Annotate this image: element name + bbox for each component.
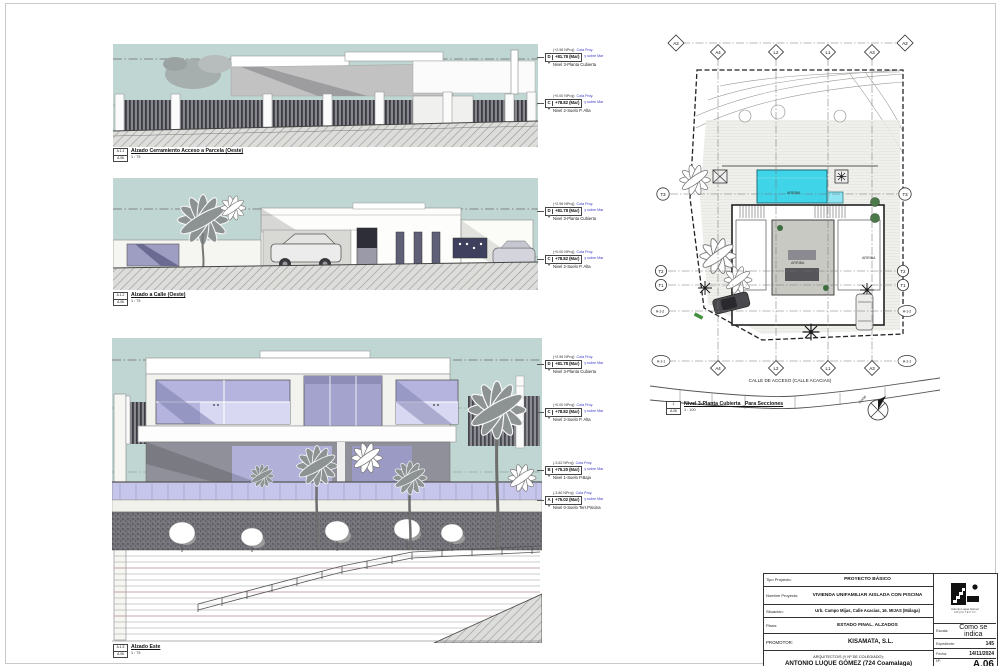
level-marker-c: (+0.00 NProj)Cota Proy. C+78.82 (Mar)y s… bbox=[537, 404, 667, 423]
level-marker-c: (+0.00 NProj)Cota Proy. C+78.82 (Mar)y s… bbox=[537, 95, 667, 114]
grid-bubble-l1-bottom: L1 bbox=[821, 361, 836, 376]
view-tag: A.1.1A.06 bbox=[113, 148, 128, 162]
grid-bubble-a4-top: A4 bbox=[711, 45, 726, 60]
svg-text:CALLE DE ACCESO (CALLE ACACIAS: CALLE DE ACCESO (CALLE ACACIAS) bbox=[749, 378, 832, 383]
grid-bubble-a4-bottom: A4 bbox=[711, 361, 726, 376]
level-marker-d: (+2.96 NProj)Cota Proy. D+81.78 (Mar)y s… bbox=[537, 203, 667, 222]
view-tag: A.1.3A.06 bbox=[113, 644, 128, 658]
view-tag: A.1.2A.06 bbox=[113, 292, 128, 306]
grid-bubble-t2-right: T2 bbox=[897, 265, 908, 276]
view-label-street: A.1.2A.06 Alzado a Calle (Oeste)1 : 75 bbox=[113, 292, 185, 306]
svg-text:T1: T1 bbox=[659, 283, 665, 288]
svg-text:A3: A3 bbox=[869, 50, 875, 55]
field-label: Fecha: bbox=[936, 652, 947, 656]
grid-bubble-t3-left: T3 bbox=[657, 188, 669, 200]
file-number: 145 bbox=[986, 641, 994, 647]
field-label: Plano: bbox=[764, 622, 802, 629]
grid-bubble-t3-right: T3 bbox=[899, 188, 911, 200]
svg-text:A-1-1: A-1-1 bbox=[903, 360, 911, 364]
drawing-sheet: A2 A4 L2 L1 A3 A2 A4 L2 L1 A3 T3 T3 T2 T… bbox=[0, 0, 1000, 666]
view-tag: 1A.06 bbox=[666, 401, 681, 415]
svg-text:A4: A4 bbox=[715, 366, 721, 371]
elevation-east-drawing bbox=[112, 338, 542, 643]
grid-bubble-t1-left: T1 bbox=[655, 279, 666, 290]
svg-text:A2: A2 bbox=[673, 41, 679, 46]
grid-bubble-l2-bottom: L2 bbox=[769, 361, 784, 376]
elevation-street-west-drawing bbox=[113, 178, 538, 290]
svg-text:T2: T2 bbox=[901, 269, 907, 274]
grid-bubble-a2-left: A2 bbox=[668, 35, 684, 51]
field-label: PROMOTOR: bbox=[764, 639, 808, 646]
svg-text:ARRIBA: ARRIBA bbox=[791, 261, 805, 265]
section-marker-a12-right: A-1-2 bbox=[898, 306, 916, 317]
svg-text:T3: T3 bbox=[902, 192, 908, 197]
sheet-title: ESTADO FINAL. ALZADOS bbox=[802, 623, 933, 629]
field-label: Situación: bbox=[764, 608, 802, 615]
scale-value: Como se indica bbox=[950, 624, 996, 638]
svg-text:A-1-2: A-1-2 bbox=[903, 310, 911, 314]
architect-logo: Antonio Luque Gómez ARQUITECTO bbox=[934, 574, 996, 624]
logo-architect-title: ARQUITECTO bbox=[954, 611, 976, 614]
grid-bubble-a3-top: A3 bbox=[865, 45, 880, 60]
level-marker-d: (+2.96 NProj)Cota Proy. D+81.78 (Mar)y s… bbox=[537, 49, 667, 68]
view-label-east: A.1.3A.06 Alzado Este1 : 75 bbox=[113, 644, 160, 658]
svg-text:ARRIBA: ARRIBA bbox=[787, 191, 801, 195]
level-marker-b: (-3.62 NProj)Cota Proy. B+75.20 (Mar)y s… bbox=[537, 462, 667, 481]
grid-bubble-t1-right: T1 bbox=[897, 279, 908, 290]
elevation-fence-access-west-drawing bbox=[113, 44, 538, 147]
grid-bubble-a3-bottom: A3 bbox=[865, 361, 880, 376]
svg-text:A-1-2: A-1-2 bbox=[656, 310, 664, 314]
terrain-contours bbox=[114, 556, 540, 634]
svg-text:A2: A2 bbox=[902, 41, 908, 46]
architect-name: ANTONIO LUQUE GÓMEZ (724 Coamalaga) bbox=[785, 660, 912, 666]
balustrade bbox=[112, 482, 542, 512]
north-arrow: Norte bbox=[857, 393, 888, 420]
logo-icon bbox=[951, 583, 979, 605]
project-address: Urb. Campo Mijas, Calle Acacias, 16. MIJ… bbox=[802, 609, 933, 614]
level-marker-d: (+2.96 NProj)Cota Proy. D+81.78 (Mar)y s… bbox=[537, 356, 667, 375]
svg-text:L2: L2 bbox=[774, 366, 779, 371]
sheet-number: A.06 bbox=[973, 659, 994, 666]
svg-text:Norte: Norte bbox=[857, 393, 868, 404]
grid-bubble-a2-right: A2 bbox=[897, 35, 913, 51]
svg-text:A3: A3 bbox=[869, 366, 875, 371]
view-label-fence-access: A.1.1A.06 Alzado Cerramiento Acceso a Pa… bbox=[113, 148, 243, 162]
svg-text:T1: T1 bbox=[901, 283, 907, 288]
svg-text:T3: T3 bbox=[660, 192, 666, 197]
field-label: Expediente: bbox=[936, 642, 955, 646]
date-value: 14/11/2024 bbox=[969, 651, 994, 657]
field-label: Nº: bbox=[936, 659, 941, 663]
project-name: VIVIENDA UNIFAMILIAR AISLADA CON PISCINA bbox=[802, 593, 933, 599]
svg-text:L2: L2 bbox=[774, 50, 779, 55]
svg-text:L1: L1 bbox=[826, 366, 831, 371]
field-label: Nombre Proyecto: bbox=[764, 592, 802, 599]
promoter: KISAMATA, S.L. bbox=[808, 639, 933, 646]
grid-bubble-l1-top: L1 bbox=[821, 45, 836, 60]
carport-and-car bbox=[263, 230, 359, 270]
hatched-slope bbox=[434, 594, 542, 643]
level-marker-a: (-3.80 NProj)Cota Proy. A+75.02 (Mar)y s… bbox=[537, 492, 667, 511]
view-label-roof-plan: 1A.06 Nivel 3-Planta Cubierta _Para Secc… bbox=[666, 401, 783, 415]
house-upper-floor bbox=[146, 351, 458, 426]
field-label: ARQUITECTO/S (Y Nº DE COLEGIADO): bbox=[813, 655, 884, 659]
svg-text:A4: A4 bbox=[715, 50, 721, 55]
grid-bubble-l2-top: L2 bbox=[769, 45, 784, 60]
site-plan-drawing: A2 A4 L2 L1 A3 A2 A4 L2 L1 A3 T3 T3 T2 T… bbox=[650, 28, 940, 423]
field-label: Tipo Proyecto: bbox=[764, 576, 802, 583]
field-label: Escala: bbox=[934, 629, 950, 633]
project-type: PROYECTO BÁSICO bbox=[802, 577, 933, 583]
section-marker-a11-right: A-1-1 bbox=[898, 356, 916, 367]
level-marker-c: (+0.00 NProj)Cota Proy. C+78.82 (Mar)y s… bbox=[537, 251, 667, 270]
section-marker-a12-left: A-1-2 bbox=[651, 306, 669, 317]
svg-text:L1: L1 bbox=[826, 50, 831, 55]
svg-text:ARRIBA: ARRIBA bbox=[862, 256, 876, 260]
title-block: Tipo Proyecto:PROYECTO BÁSICO Nombre Pro… bbox=[763, 573, 998, 666]
